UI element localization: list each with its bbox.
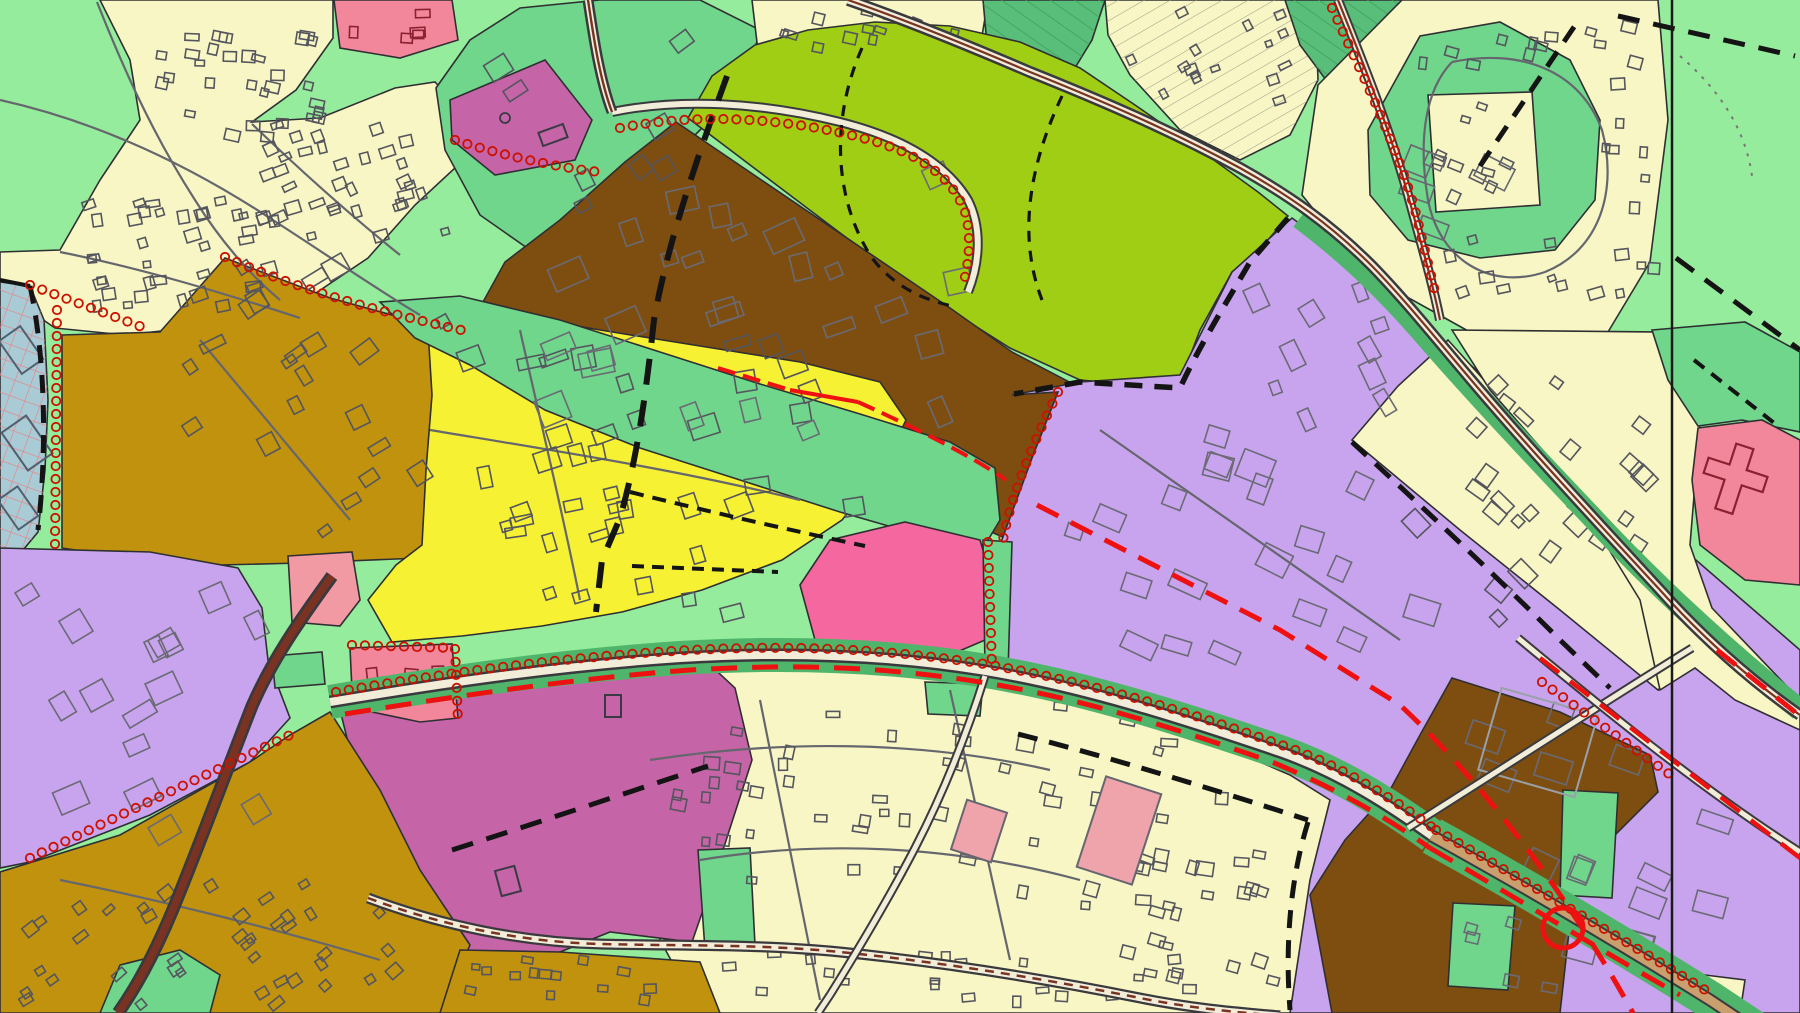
zone-mint-in-brown-a [1560, 790, 1618, 898]
map-viewport [0, 0, 1800, 1013]
zone-mint-strip-bc [698, 848, 755, 950]
zoning-map-canvas[interactable] [0, 0, 1800, 1013]
